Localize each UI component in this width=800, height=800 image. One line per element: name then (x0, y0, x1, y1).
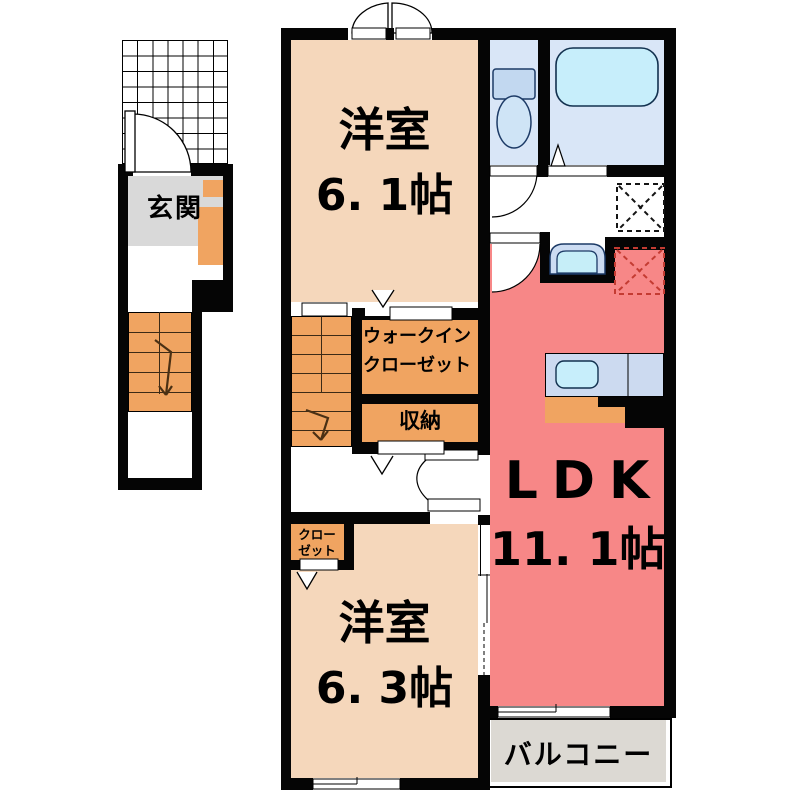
entrance-porch-grid (122, 40, 228, 164)
room-area: 11. 1帖 (490, 522, 664, 577)
kitchen-counter (545, 353, 664, 397)
washer-space-icon (617, 184, 664, 231)
western-room-1-label: 洋室 6. 1帖 (291, 103, 478, 223)
closet-line2: ゼット (289, 543, 345, 559)
main-stairs-divider (321, 316, 322, 392)
floor-plan: バルコニー (0, 0, 800, 800)
wall (118, 478, 202, 490)
wall (598, 397, 625, 407)
entrance-label: 玄関 (130, 194, 220, 225)
wall (352, 308, 490, 320)
wall (478, 706, 676, 718)
closet-line1: クロー (289, 527, 345, 543)
wall (223, 164, 233, 290)
wall (625, 397, 668, 428)
wall (605, 237, 664, 250)
wic-line2: クローゼット (355, 352, 479, 381)
room-area: 6. 3帖 (291, 663, 478, 716)
wall (118, 164, 128, 490)
room-name: 洋室 (291, 596, 478, 651)
room-area: 6. 1帖 (291, 170, 478, 223)
balcony-floor: バルコニー (485, 718, 672, 788)
room-name: LDK (490, 450, 664, 512)
wall (281, 512, 490, 524)
bathroom-floor (550, 38, 664, 165)
walk-in-closet-label: ウォークイン クローゼット (355, 323, 479, 381)
balcony-label: バルコニー (504, 733, 653, 773)
wall (281, 778, 490, 790)
wall (540, 272, 615, 283)
wall (352, 394, 490, 404)
wall (118, 164, 233, 176)
wall (664, 28, 676, 718)
storage-label: 収納 (362, 409, 478, 434)
western-room-2-label: 洋室 6. 3帖 (291, 596, 478, 716)
wall (478, 675, 490, 790)
wic-line1: ウォークイン (355, 323, 479, 352)
closet-label: クロー ゼット (289, 527, 345, 560)
room-name: 洋室 (291, 103, 478, 158)
entry-stairs-divider (159, 312, 160, 394)
wall (281, 28, 291, 790)
wall (288, 560, 354, 570)
wall (478, 302, 490, 455)
ldk-label: LDK 11. 1帖 (490, 450, 664, 578)
wall (352, 442, 490, 454)
wall (538, 38, 550, 177)
wall (192, 280, 202, 490)
washroom-floor (548, 232, 605, 272)
entry-staircase (128, 312, 192, 412)
corridor-door-icon (417, 450, 480, 511)
wall (478, 165, 676, 177)
toilet-room-floor (490, 38, 538, 165)
